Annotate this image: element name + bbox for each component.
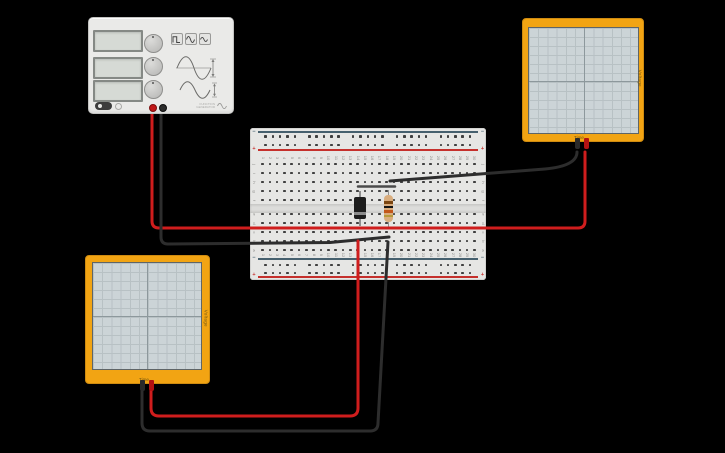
breadboard-rail-hole[interactable]	[410, 135, 413, 138]
breadboard-hole[interactable]	[342, 240, 345, 243]
breadboard-rail-hole[interactable]	[374, 264, 377, 267]
breadboard-rail-hole[interactable]	[323, 135, 326, 138]
power-toggle[interactable]	[95, 102, 112, 110]
breadboard-hole[interactable]	[400, 181, 403, 184]
breadboard-hole[interactable]	[327, 190, 330, 193]
breadboard-hole[interactable]	[290, 172, 293, 175]
breadboard-rail-hole[interactable]	[352, 272, 355, 275]
breadboard-hole[interactable]	[327, 240, 330, 243]
breadboard-rail-hole[interactable]	[410, 144, 413, 147]
function-generator[interactable]: FUNCTION GENERATOR	[88, 17, 234, 114]
breadboard-hole[interactable]	[444, 190, 447, 193]
breadboard-hole[interactable]	[298, 172, 301, 175]
breadboard-hole[interactable]	[393, 181, 396, 184]
breadboard-hole[interactable]	[459, 199, 462, 202]
breadboard-rail-hole[interactable]	[454, 264, 457, 267]
breadboard-hole[interactable]	[407, 213, 410, 216]
breadboard-hole[interactable]	[459, 213, 462, 216]
breadboard-hole[interactable]	[320, 172, 323, 175]
breadboard-hole[interactable]	[400, 222, 403, 225]
breadboard-hole[interactable]	[429, 240, 432, 243]
breadboard-hole[interactable]	[407, 190, 410, 193]
breadboard-hole[interactable]	[407, 240, 410, 243]
breadboard-hole[interactable]	[334, 222, 337, 225]
breadboard-hole[interactable]	[371, 190, 374, 193]
breadboard-hole[interactable]	[415, 213, 418, 216]
breadboard-hole[interactable]	[437, 231, 440, 234]
breadboard-rail-hole[interactable]	[425, 135, 428, 138]
breadboard-hole[interactable]	[393, 240, 396, 243]
breadboard-hole[interactable]	[312, 190, 315, 193]
breadboard-hole[interactable]	[451, 213, 454, 216]
breadboard-hole[interactable]	[349, 213, 352, 216]
breadboard-hole[interactable]	[276, 163, 279, 166]
breadboard-rail-hole[interactable]	[264, 144, 267, 147]
breadboard-rail-hole[interactable]	[447, 264, 450, 267]
breadboard-rail-hole[interactable]	[461, 264, 464, 267]
breadboard-rail-hole[interactable]	[323, 272, 326, 275]
breadboard-hole[interactable]	[385, 163, 388, 166]
breadboard-hole[interactable]	[349, 163, 352, 166]
breadboard-rail-hole[interactable]	[418, 272, 421, 275]
breadboard-hole[interactable]	[444, 240, 447, 243]
breadboard-hole[interactable]	[407, 172, 410, 175]
breadboard-rail-hole[interactable]	[294, 144, 297, 147]
breadboard-hole[interactable]	[261, 190, 264, 193]
breadboard-hole[interactable]	[378, 181, 381, 184]
breadboard-hole[interactable]	[451, 181, 454, 184]
breadboard-hole[interactable]	[459, 190, 462, 193]
breadboard-hole[interactable]	[312, 240, 315, 243]
breadboard-hole[interactable]	[327, 172, 330, 175]
breadboard-hole[interactable]	[378, 240, 381, 243]
breadboard-hole[interactable]	[422, 213, 425, 216]
breadboard-rail-hole[interactable]	[425, 144, 428, 147]
breadboard-hole[interactable]	[385, 172, 388, 175]
breadboard-hole[interactable]	[298, 181, 301, 184]
breadboard-hole[interactable]	[422, 190, 425, 193]
waveform-triangle-button[interactable]	[199, 33, 211, 45]
breadboard-hole[interactable]	[444, 199, 447, 202]
breadboard-hole[interactable]	[459, 181, 462, 184]
breadboard-hole[interactable]	[261, 172, 264, 175]
breadboard-hole[interactable]	[261, 181, 264, 184]
breadboard-hole[interactable]	[429, 190, 432, 193]
breadboard-hole[interactable]	[349, 199, 352, 202]
breadboard-hole[interactable]	[356, 181, 359, 184]
breadboard-hole[interactable]	[334, 231, 337, 234]
breadboard-hole[interactable]	[400, 199, 403, 202]
breadboard-hole[interactable]	[407, 231, 410, 234]
breadboard-hole[interactable]	[356, 172, 359, 175]
breadboard-hole[interactable]	[459, 222, 462, 225]
breadboard-rail-hole[interactable]	[294, 272, 297, 275]
breadboard-rail-hole[interactable]	[454, 272, 457, 275]
scope-negative-terminal[interactable]	[575, 138, 580, 149]
breadboard-hole[interactable]	[371, 240, 374, 243]
breadboard-rail-hole[interactable]	[396, 144, 399, 147]
breadboard-hole[interactable]	[451, 172, 454, 175]
breadboard-hole[interactable]	[415, 240, 418, 243]
breadboard-hole[interactable]	[378, 213, 381, 216]
breadboard-rail-hole[interactable]	[469, 144, 472, 147]
breadboard-rail-hole[interactable]	[359, 135, 362, 138]
breadboard-hole[interactable]	[415, 190, 418, 193]
breadboard-rail-hole[interactable]	[410, 272, 413, 275]
breadboard-hole[interactable]	[276, 190, 279, 193]
breadboard-hole[interactable]	[400, 163, 403, 166]
fg-knob-offset[interactable]	[144, 80, 163, 99]
breadboard-hole[interactable]	[437, 240, 440, 243]
breadboard-rail-hole[interactable]	[330, 135, 333, 138]
breadboard-rail-hole[interactable]	[374, 144, 377, 147]
breadboard-hole[interactable]	[415, 172, 418, 175]
breadboard-hole[interactable]	[466, 213, 469, 216]
breadboard-hole[interactable]	[342, 172, 345, 175]
breadboard-hole[interactable]	[378, 190, 381, 193]
breadboard-hole[interactable]	[378, 231, 381, 234]
breadboard-rail-hole[interactable]	[410, 264, 413, 267]
breadboard-hole[interactable]	[320, 213, 323, 216]
breadboard-hole[interactable]	[444, 231, 447, 234]
breadboard-rail-hole[interactable]	[403, 135, 406, 138]
breadboard-rail-hole[interactable]	[418, 264, 421, 267]
breadboard-hole[interactable]	[312, 172, 315, 175]
breadboard-hole[interactable]	[327, 199, 330, 202]
breadboard-rail-hole[interactable]	[286, 144, 289, 147]
breadboard-hole[interactable]	[261, 222, 264, 225]
breadboard-hole[interactable]	[276, 213, 279, 216]
breadboard-rail-hole[interactable]	[469, 264, 472, 267]
fg-positive-terminal[interactable]	[149, 104, 157, 112]
breadboard-hole[interactable]	[451, 222, 454, 225]
breadboard-rail-hole[interactable]	[279, 135, 282, 138]
breadboard-rail-hole[interactable]	[330, 272, 333, 275]
breadboard-hole[interactable]	[276, 172, 279, 175]
breadboard-rail-hole[interactable]	[381, 264, 384, 267]
breadboard-rail-hole[interactable]	[396, 264, 399, 267]
breadboard-rail-hole[interactable]	[367, 144, 370, 147]
breadboard-rail-hole[interactable]	[425, 272, 428, 275]
breadboard-rail-hole[interactable]	[330, 264, 333, 267]
breadboard-rail-hole[interactable]	[337, 272, 340, 275]
breadboard-rail-hole[interactable]	[418, 144, 421, 147]
breadboard-hole[interactable]	[407, 222, 410, 225]
breadboard-rail-hole[interactable]	[352, 264, 355, 267]
waveform-sine-button[interactable]	[185, 33, 197, 45]
breadboard-rail-hole[interactable]	[286, 272, 289, 275]
scope-positive-terminal[interactable]	[149, 380, 154, 391]
waveform-square-button[interactable]	[171, 33, 183, 45]
breadboard-rail-hole[interactable]	[469, 135, 472, 138]
breadboard-hole[interactable]	[290, 231, 293, 234]
breadboard-hole[interactable]	[459, 231, 462, 234]
breadboard-hole[interactable]	[342, 190, 345, 193]
breadboard-hole[interactable]	[371, 231, 374, 234]
breadboard-hole[interactable]	[415, 163, 418, 166]
breadboard-hole[interactable]	[283, 190, 286, 193]
breadboard-hole[interactable]	[269, 163, 272, 166]
fg-negative-terminal[interactable]	[159, 104, 167, 112]
breadboard-rail-hole[interactable]	[308, 264, 311, 267]
breadboard-rail-hole[interactable]	[374, 135, 377, 138]
breadboard-hole[interactable]	[298, 240, 301, 243]
breadboard-hole[interactable]	[349, 181, 352, 184]
breadboard-hole[interactable]	[349, 172, 352, 175]
breadboard-hole[interactable]	[327, 213, 330, 216]
breadboard-hole[interactable]	[437, 172, 440, 175]
breadboard-rail-hole[interactable]	[272, 135, 275, 138]
breadboard-rail-hole[interactable]	[367, 135, 370, 138]
breadboard-hole[interactable]	[444, 222, 447, 225]
breadboard-hole[interactable]	[283, 231, 286, 234]
breadboard-hole[interactable]	[276, 240, 279, 243]
breadboard-hole[interactable]	[261, 213, 264, 216]
breadboard-hole[interactable]	[334, 199, 337, 202]
breadboard-hole[interactable]	[466, 181, 469, 184]
breadboard-hole[interactable]	[422, 172, 425, 175]
breadboard-rail-hole[interactable]	[367, 272, 370, 275]
scope-positive-terminal[interactable]	[584, 138, 589, 149]
breadboard-hole[interactable]	[371, 213, 374, 216]
breadboard-rail-hole[interactable]	[425, 264, 428, 267]
breadboard-rail-hole[interactable]	[447, 272, 450, 275]
breadboard-hole[interactable]	[356, 240, 359, 243]
breadboard-hole[interactable]	[334, 172, 337, 175]
breadboard-rail-hole[interactable]	[308, 135, 311, 138]
breadboard-hole[interactable]	[283, 240, 286, 243]
breadboard-hole[interactable]	[364, 222, 367, 225]
fg-knob-amplitude[interactable]	[144, 57, 163, 76]
breadboard-hole[interactable]	[422, 240, 425, 243]
breadboard-rail-hole[interactable]	[286, 264, 289, 267]
breadboard-hole[interactable]	[378, 172, 381, 175]
breadboard-hole[interactable]	[437, 222, 440, 225]
breadboard-rail-hole[interactable]	[447, 135, 450, 138]
breadboard-hole[interactable]	[473, 163, 476, 166]
breadboard-rail-hole[interactable]	[440, 144, 443, 147]
breadboard-rail-hole[interactable]	[323, 144, 326, 147]
breadboard-rail-hole[interactable]	[461, 144, 464, 147]
breadboard-hole[interactable]	[466, 240, 469, 243]
breadboard-rail-hole[interactable]	[264, 272, 267, 275]
breadboard-hole[interactable]	[312, 213, 315, 216]
breadboard-hole[interactable]	[276, 199, 279, 202]
breadboard-hole[interactable]	[283, 199, 286, 202]
scope-negative-terminal[interactable]	[140, 380, 145, 391]
breadboard-hole[interactable]	[269, 190, 272, 193]
breadboard-hole[interactable]	[305, 190, 308, 193]
breadboard-hole[interactable]	[466, 163, 469, 166]
breadboard-hole[interactable]	[283, 163, 286, 166]
breadboard-hole[interactable]	[473, 240, 476, 243]
breadboard-rail-hole[interactable]	[308, 144, 311, 147]
breadboard-hole[interactable]	[393, 222, 396, 225]
breadboard-rail-hole[interactable]	[337, 264, 340, 267]
breadboard-hole[interactable]	[364, 181, 367, 184]
breadboard-hole[interactable]	[393, 163, 396, 166]
breadboard-hole[interactable]	[400, 240, 403, 243]
breadboard-hole[interactable]	[276, 181, 279, 184]
breadboard-hole[interactable]	[371, 222, 374, 225]
breadboard-hole[interactable]	[283, 213, 286, 216]
breadboard-hole[interactable]	[290, 240, 293, 243]
breadboard-hole[interactable]	[429, 172, 432, 175]
breadboard-hole[interactable]	[320, 199, 323, 202]
breadboard[interactable]: 1122334455667788991010111112121313141415…	[250, 128, 486, 280]
breadboard-rail-hole[interactable]	[294, 135, 297, 138]
breadboard-rail-hole[interactable]	[454, 144, 457, 147]
breadboard-hole[interactable]	[429, 181, 432, 184]
breadboard-rail-hole[interactable]	[337, 135, 340, 138]
breadboard-rail-hole[interactable]	[279, 272, 282, 275]
breadboard-hole[interactable]	[327, 163, 330, 166]
breadboard-hole[interactable]	[349, 240, 352, 243]
breadboard-hole[interactable]	[349, 231, 352, 234]
breadboard-hole[interactable]	[364, 172, 367, 175]
breadboard-hole[interactable]	[473, 199, 476, 202]
breadboard-hole[interactable]	[298, 163, 301, 166]
breadboard-rail-hole[interactable]	[315, 272, 318, 275]
breadboard-hole[interactable]	[451, 163, 454, 166]
breadboard-hole[interactable]	[364, 190, 367, 193]
breadboard-rail-hole[interactable]	[440, 272, 443, 275]
breadboard-rail-hole[interactable]	[403, 272, 406, 275]
breadboard-hole[interactable]	[444, 213, 447, 216]
breadboard-hole[interactable]	[451, 199, 454, 202]
breadboard-rail-hole[interactable]	[367, 264, 370, 267]
breadboard-hole[interactable]	[320, 190, 323, 193]
breadboard-hole[interactable]	[269, 213, 272, 216]
breadboard-rail-hole[interactable]	[264, 264, 267, 267]
breadboard-hole[interactable]	[349, 190, 352, 193]
breadboard-hole[interactable]	[356, 163, 359, 166]
breadboard-hole[interactable]	[444, 163, 447, 166]
breadboard-hole[interactable]	[290, 199, 293, 202]
oscilloscope-top-right[interactable]: Voltage Time	[522, 18, 644, 142]
breadboard-hole[interactable]	[261, 231, 264, 234]
breadboard-hole[interactable]	[312, 163, 315, 166]
breadboard-hole[interactable]	[429, 222, 432, 225]
breadboard-rail-hole[interactable]	[381, 272, 384, 275]
breadboard-rail-hole[interactable]	[352, 144, 355, 147]
breadboard-hole[interactable]	[444, 181, 447, 184]
breadboard-hole[interactable]	[298, 231, 301, 234]
breadboard-hole[interactable]	[371, 199, 374, 202]
breadboard-hole[interactable]	[261, 163, 264, 166]
breadboard-rail-hole[interactable]	[447, 144, 450, 147]
breadboard-hole[interactable]	[290, 213, 293, 216]
breadboard-hole[interactable]	[334, 213, 337, 216]
breadboard-hole[interactable]	[342, 213, 345, 216]
breadboard-hole[interactable]	[305, 199, 308, 202]
breadboard-hole[interactable]	[305, 163, 308, 166]
breadboard-hole[interactable]	[269, 222, 272, 225]
breadboard-hole[interactable]	[312, 199, 315, 202]
breadboard-hole[interactable]	[371, 181, 374, 184]
breadboard-hole[interactable]	[320, 222, 323, 225]
breadboard-hole[interactable]	[290, 222, 293, 225]
breadboard-hole[interactable]	[415, 199, 418, 202]
breadboard-hole[interactable]	[305, 240, 308, 243]
breadboard-hole[interactable]	[305, 181, 308, 184]
breadboard-hole[interactable]	[400, 231, 403, 234]
resistor[interactable]	[384, 195, 393, 222]
breadboard-hole[interactable]	[473, 231, 476, 234]
breadboard-hole[interactable]	[342, 163, 345, 166]
breadboard-hole[interactable]	[342, 199, 345, 202]
breadboard-rail-hole[interactable]	[272, 144, 275, 147]
breadboard-rail-hole[interactable]	[440, 264, 443, 267]
breadboard-rail-hole[interactable]	[272, 272, 275, 275]
breadboard-hole[interactable]	[283, 222, 286, 225]
breadboard-rail-hole[interactable]	[279, 264, 282, 267]
breadboard-hole[interactable]	[269, 240, 272, 243]
breadboard-hole[interactable]	[371, 163, 374, 166]
breadboard-hole[interactable]	[451, 240, 454, 243]
breadboard-hole[interactable]	[437, 190, 440, 193]
breadboard-hole[interactable]	[349, 222, 352, 225]
breadboard-hole[interactable]	[269, 172, 272, 175]
breadboard-rail-hole[interactable]	[440, 135, 443, 138]
fg-knob-frequency[interactable]	[144, 34, 163, 53]
breadboard-hole[interactable]	[422, 181, 425, 184]
breadboard-hole[interactable]	[437, 163, 440, 166]
breadboard-hole[interactable]	[422, 199, 425, 202]
breadboard-hole[interactable]	[466, 222, 469, 225]
breadboard-hole[interactable]	[269, 231, 272, 234]
breadboard-hole[interactable]	[290, 181, 293, 184]
breadboard-hole[interactable]	[400, 190, 403, 193]
breadboard-hole[interactable]	[459, 163, 462, 166]
breadboard-hole[interactable]	[385, 231, 388, 234]
breadboard-rail-hole[interactable]	[308, 272, 311, 275]
breadboard-rail-hole[interactable]	[286, 135, 289, 138]
breadboard-rail-hole[interactable]	[315, 264, 318, 267]
breadboard-hole[interactable]	[407, 163, 410, 166]
breadboard-rail-hole[interactable]	[337, 144, 340, 147]
breadboard-hole[interactable]	[342, 222, 345, 225]
breadboard-hole[interactable]	[444, 172, 447, 175]
breadboard-hole[interactable]	[276, 231, 279, 234]
breadboard-hole[interactable]	[385, 240, 388, 243]
breadboard-hole[interactable]	[415, 222, 418, 225]
breadboard-hole[interactable]	[342, 231, 345, 234]
breadboard-hole[interactable]	[393, 231, 396, 234]
breadboard-hole[interactable]	[466, 199, 469, 202]
breadboard-hole[interactable]	[451, 231, 454, 234]
breadboard-hole[interactable]	[290, 190, 293, 193]
breadboard-hole[interactable]	[415, 181, 418, 184]
breadboard-hole[interactable]	[298, 190, 301, 193]
breadboard-rail-hole[interactable]	[272, 264, 275, 267]
breadboard-hole[interactable]	[312, 231, 315, 234]
breadboard-rail-hole[interactable]	[323, 264, 326, 267]
breadboard-hole[interactable]	[283, 181, 286, 184]
breadboard-hole[interactable]	[269, 199, 272, 202]
breadboard-hole[interactable]	[356, 231, 359, 234]
breadboard-hole[interactable]	[327, 231, 330, 234]
breadboard-hole[interactable]	[364, 240, 367, 243]
breadboard-hole[interactable]	[437, 181, 440, 184]
breadboard-hole[interactable]	[393, 199, 396, 202]
breadboard-hole[interactable]	[276, 222, 279, 225]
breadboard-hole[interactable]	[290, 163, 293, 166]
breadboard-rail-hole[interactable]	[315, 135, 318, 138]
breadboard-hole[interactable]	[305, 172, 308, 175]
breadboard-hole[interactable]	[334, 190, 337, 193]
breadboard-hole[interactable]	[473, 190, 476, 193]
